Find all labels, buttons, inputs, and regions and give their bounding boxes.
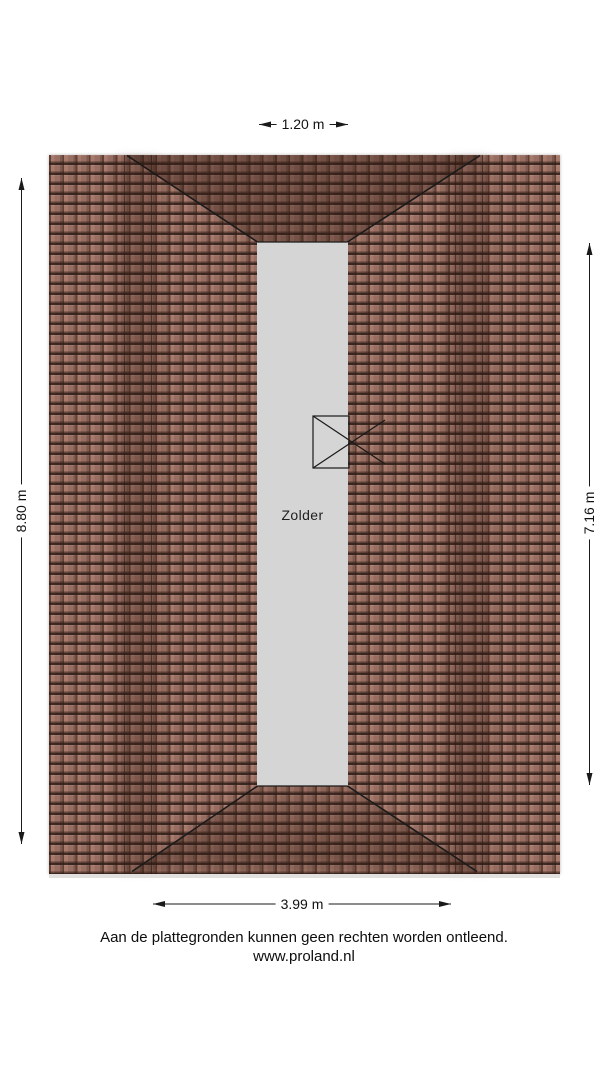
footer-disclaimer: Aan de plattegronden kunnen geen rechten… — [0, 928, 608, 947]
arrow-down-icon — [587, 773, 593, 785]
footer-website: www.proland.nl — [0, 947, 608, 966]
arrow-right-icon — [336, 122, 348, 128]
dimension-left: 8.80 m — [12, 485, 30, 538]
dimension-bottom: 3.99 m — [276, 895, 329, 913]
dimension-arrowheads — [19, 122, 593, 908]
roof-ridge-lines — [258, 242, 348, 786]
dimension-top: 1.20 m — [277, 115, 330, 133]
roof-fold-lines — [125, 155, 483, 874]
roof-window-icon — [313, 416, 385, 468]
arrow-up-icon — [19, 178, 25, 190]
roof-hip-lines — [127, 156, 480, 872]
arrow-left-icon — [259, 122, 271, 128]
footer: Aan de plattegronden kunnen geen rechten… — [0, 928, 608, 966]
floorplan: Zolder — [0, 0, 608, 1080]
plan-lines — [0, 0, 608, 1080]
arrow-up-icon — [587, 243, 593, 255]
dimension-right: 7.16 m — [580, 487, 598, 540]
arrow-left-icon — [153, 901, 165, 907]
arrow-right-icon — [439, 901, 451, 907]
arrow-down-icon — [19, 832, 25, 844]
